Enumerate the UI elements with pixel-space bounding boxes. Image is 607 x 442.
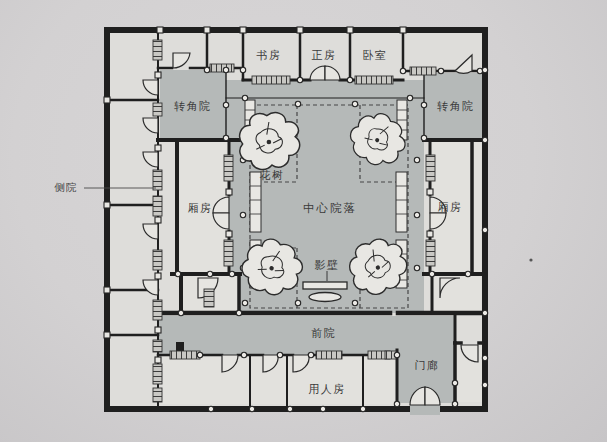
floor-plan: 书房 正房 卧室 转角院 转角院 侧院 厢房 厢房 花树 中心院落 影壁 前院 … bbox=[0, 0, 607, 442]
label-wing-room-left: 厢房 bbox=[188, 202, 213, 215]
label-porch: 门廊 bbox=[415, 359, 440, 372]
label-corner-courtyard-left: 转角院 bbox=[173, 100, 212, 113]
label-front-courtyard: 前院 bbox=[311, 327, 337, 340]
label-corner-courtyard-right: 转角院 bbox=[436, 100, 475, 113]
photo-speck bbox=[529, 258, 532, 261]
label-servants-room: 用人房 bbox=[308, 383, 346, 396]
label-study: 书房 bbox=[257, 49, 282, 62]
label-central-courtyard: 中心院落 bbox=[303, 201, 357, 215]
label-main-hall: 正房 bbox=[312, 49, 337, 62]
label-bedroom: 卧室 bbox=[363, 49, 388, 62]
label-flower-tree: 花树 bbox=[260, 169, 285, 182]
label-wing-room-right: 厢房 bbox=[438, 201, 463, 214]
label-side-courtyard: 侧院 bbox=[54, 181, 78, 193]
book-page-photo: 书房 正房 卧室 转角院 转角院 侧院 厢房 厢房 花树 中心院落 影壁 前院 … bbox=[0, 0, 607, 442]
area-fills bbox=[110, 33, 483, 406]
label-screen-wall: 影壁 bbox=[315, 259, 340, 272]
